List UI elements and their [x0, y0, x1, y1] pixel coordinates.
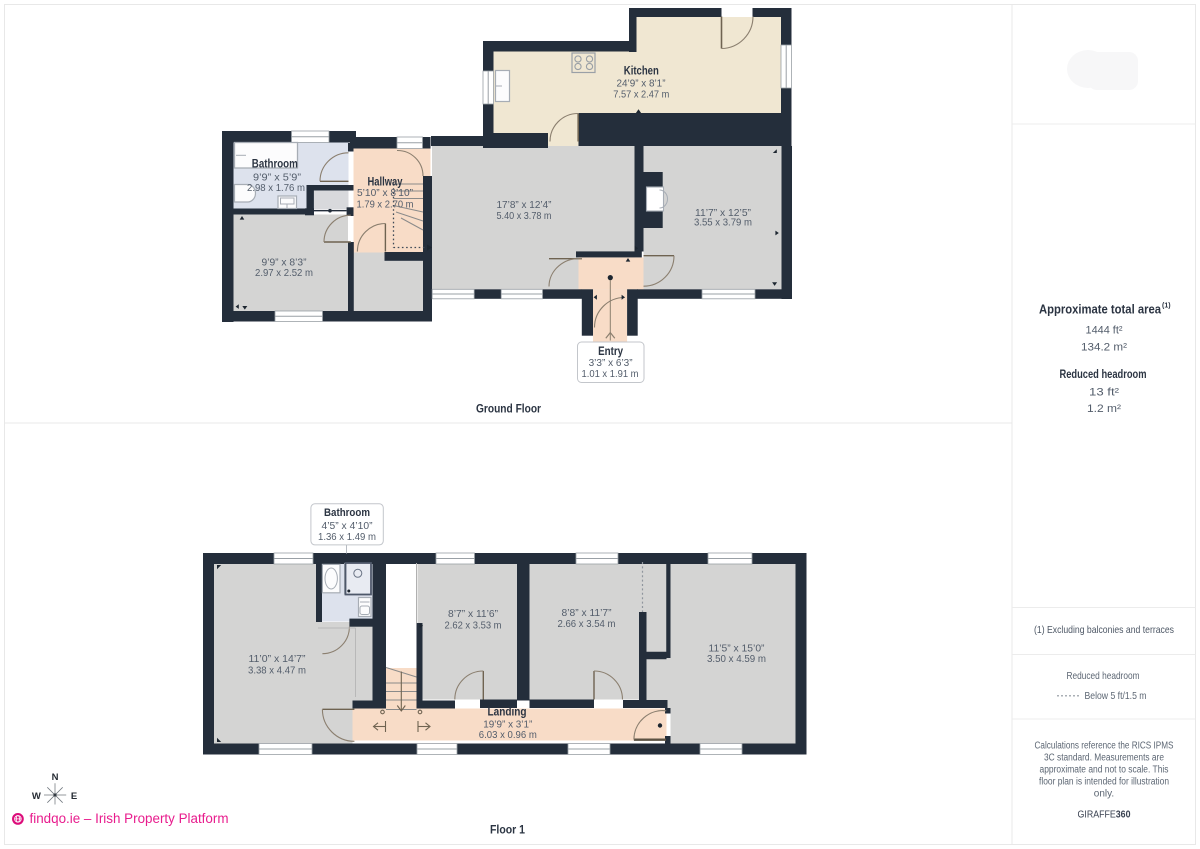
svg-text:3C standard. Measurements are: 3C standard. Measurements are: [1044, 753, 1164, 764]
svg-text:7.57 x 2.47 m: 7.57 x 2.47 m: [613, 88, 669, 100]
svg-text:1.79 x 2.70 m: 1.79 x 2.70 m: [357, 199, 414, 211]
svg-text:1.01 x 1.91 m: 1.01 x 1.91 m: [582, 368, 639, 380]
svg-text:8’7” x 11’6”: 8’7” x 11’6”: [448, 608, 498, 620]
svg-text:Reduced headroom: Reduced headroom: [1067, 670, 1140, 682]
svg-text:2.97 x 2.52 m: 2.97 x 2.52 m: [255, 267, 313, 279]
svg-text:13 ft²: 13 ft²: [1089, 387, 1119, 399]
svg-text:5’10” x 8’10”: 5’10” x 8’10”: [357, 187, 413, 199]
svg-text:Reduced headroom: Reduced headroom: [1060, 367, 1147, 381]
svg-text:2.66 x 3.54 m: 2.66 x 3.54 m: [558, 618, 616, 630]
svg-text:Bathroom: Bathroom: [252, 157, 298, 171]
svg-text:(1): (1): [1162, 303, 1171, 310]
svg-text:Landing: Landing: [488, 705, 527, 719]
svg-text:11’0” x 14’7”: 11’0” x 14’7”: [249, 653, 306, 665]
svg-text:Below 5 ft/1.5 m: Below 5 ft/1.5 m: [1085, 690, 1147, 702]
svg-text:Approximate total area: Approximate total area: [1039, 303, 1162, 317]
svg-text:only.: only.: [1094, 789, 1114, 800]
svg-text:3.38 x 4.47 m: 3.38 x 4.47 m: [248, 665, 306, 677]
svg-text:findqo.ie – Irish Property Pla: findqo.ie – Irish Property Platform: [30, 811, 229, 826]
svg-text:17’8” x 12’4”: 17’8” x 12’4”: [497, 199, 552, 211]
svg-text:N: N: [52, 772, 59, 783]
svg-text:5.40 x 3.78 m: 5.40 x 3.78 m: [497, 210, 552, 222]
svg-text:Ground Floor: Ground Floor: [476, 401, 541, 415]
svg-text:1444 ft²: 1444 ft²: [1086, 325, 1123, 337]
svg-text:W: W: [32, 791, 41, 802]
svg-text:Calculations reference the RIC: Calculations reference the RICS IPMS: [1035, 741, 1174, 752]
svg-text:2.98 x 1.76 m: 2.98 x 1.76 m: [247, 182, 305, 194]
svg-text:approximate and not to scale.: approximate and not to scale. This: [1040, 765, 1169, 776]
svg-text:GIRAFFE360: GIRAFFE360: [1078, 809, 1131, 821]
svg-text:4’5” x 4’10”: 4’5” x 4’10”: [322, 521, 373, 532]
svg-text:floor plan is intended for ill: floor plan is intended for illustration: [1039, 777, 1169, 788]
svg-text:1.2 m²: 1.2 m²: [1087, 403, 1121, 415]
svg-text:134.2 m²: 134.2 m²: [1081, 342, 1127, 354]
svg-text:E: E: [71, 791, 77, 802]
svg-text:6.03 x 0.96 m: 6.03 x 0.96 m: [479, 729, 537, 741]
svg-text:Floor 1: Floor 1: [490, 822, 525, 836]
svg-text:(1) Excluding balconies and te: (1) Excluding balconies and terraces: [1034, 624, 1174, 636]
svg-text:3.50 x 4.59 m: 3.50 x 4.59 m: [707, 653, 766, 665]
svg-text:1.36 x 1.49 m: 1.36 x 1.49 m: [318, 532, 376, 543]
svg-text:2.62 x 3.53 m: 2.62 x 3.53 m: [445, 620, 502, 632]
svg-text:Kitchen: Kitchen: [624, 63, 659, 77]
svg-text:Bathroom: Bathroom: [324, 507, 370, 519]
svg-text:Entry: Entry: [598, 344, 623, 358]
svg-text:3.55 x 3.79 m: 3.55 x 3.79 m: [694, 217, 752, 229]
